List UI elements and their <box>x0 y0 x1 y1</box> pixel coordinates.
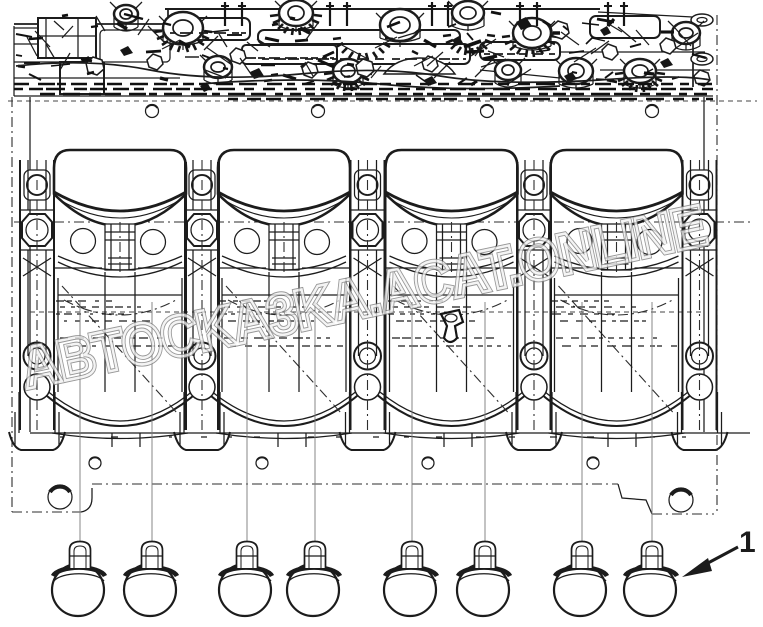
svg-text:1: 1 <box>739 526 756 559</box>
